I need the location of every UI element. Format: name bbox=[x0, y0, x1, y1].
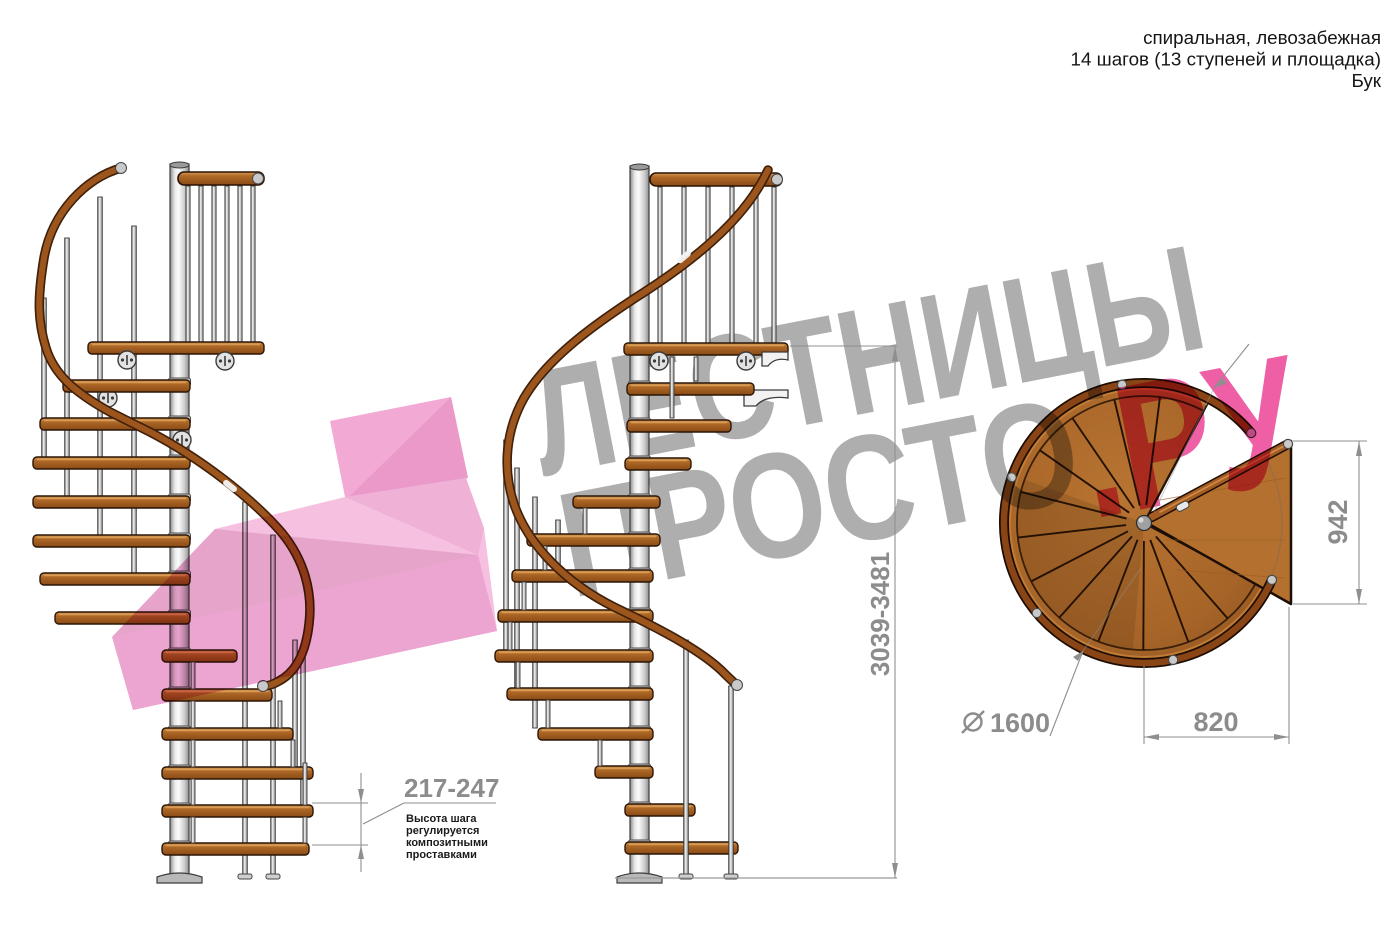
svg-text:1600: 1600 bbox=[990, 708, 1050, 738]
svg-text:820: 820 bbox=[1193, 707, 1238, 737]
svg-text:217-247: 217-247 bbox=[404, 773, 499, 803]
svg-text:Высота шагарегулируетсякомпози: Высота шагарегулируетсякомпозитнымипрост… bbox=[406, 813, 488, 861]
svg-text:942: 942 bbox=[1323, 499, 1353, 544]
svg-text:3039-3481: 3039-3481 bbox=[865, 552, 895, 676]
